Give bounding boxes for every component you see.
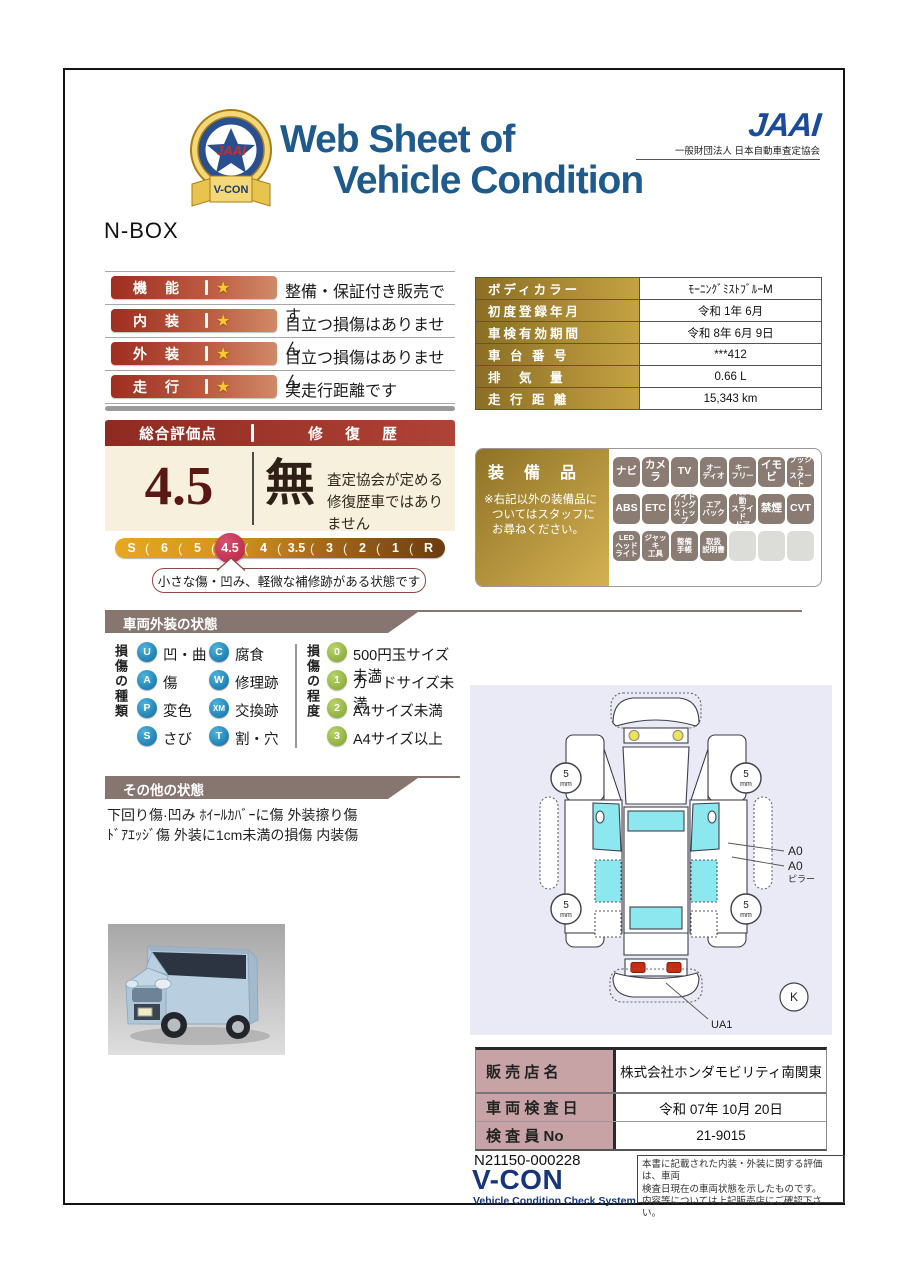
grade-callout: 小さな傷・凹み、軽微な補修跡がある状態です [152,568,426,593]
equipment-note-line2: ついてはスタッフに [484,508,609,523]
pill-divider [205,346,208,361]
dealer-label: 販 売 店 名 [476,1050,613,1092]
damage-type-u-text: 凹・曲 [163,644,207,665]
score-panel: 総合評価点 修 復 歴 4.5 無 査定協会が定める 修復歴車ではありません [105,420,455,531]
vcon-subtitle: Vehicle Condition Check System [473,1195,636,1207]
pill-divider [205,379,208,394]
equip-badge-empty [729,531,756,561]
score-panel-body: 4.5 無 査定協会が定める 修復歴車ではありません [105,446,455,531]
pill-divider [205,313,208,328]
damage-type-t-icon: T [209,726,229,746]
equipment-note-line3: お尋ねください。 [484,523,609,538]
rating-pill: 内 装 ★ [111,309,277,332]
vehicle-condition-sheet: JAAI V-CON Web Sheet of Vehicle Conditio… [0,0,904,1280]
info-value: ***412 [640,344,821,365]
ratings-table: 機 能 ★ 整備・保証付き販売です 内 装 ★ 目立つ損傷はありません 外 装 … [105,271,455,404]
damage-degree-3-text: A4サイズ以上 [353,728,443,749]
damage-type-c-text: 腐食 [235,644,264,665]
grade-r: R [412,538,445,558]
vcon-badge-logo: JAAI V-CON [182,108,280,212]
damage-type-c-icon: C [209,642,229,662]
info-value: 令和 1年 6月 [640,300,821,321]
rating-row-interior: 内 装 ★ 目立つ損傷はありません [105,305,455,338]
damage-type-a-text: 傷 [163,672,178,693]
damage-degree-2-icon: 2 [327,698,347,718]
tread-front-right-unit: mm [740,781,752,788]
damage-type-xm-icon: XM [209,698,229,718]
info-value: 0.66 L [640,366,821,387]
dealer-value: 21-9015 [616,1122,826,1149]
score-panel-header: 総合評価点 修 復 歴 [105,420,455,446]
equip-badge-camera: カメラ [642,457,669,487]
damage-type-s-text: さび [163,728,192,749]
info-label: 初度登録年月 [476,300,640,321]
repair-history-heading: 修 復 歴 [254,423,455,444]
damage-type-a-icon: A [137,670,157,690]
damage-label-ua1: UA1 [711,1019,732,1031]
rating-row-mileage: 走 行 ★ 実走行距離です [105,371,455,404]
equip-badge-power-slide-door: 片側電動 スライド ドア [729,494,756,524]
body-divider [252,452,254,525]
star-icon: ★ [216,311,230,331]
vehicle-photo [108,924,285,1055]
damage-type-w-icon: W [209,670,229,690]
damage-type-p-text: 変色 [163,700,192,721]
dealer-table: 販 売 店 名 株式会社ホンダモビリティ南関東 車 両 検 査 日 令和 07年… [475,1047,827,1151]
grade-3-5: 3.5 [280,538,313,558]
badge-jaai-text: JAAI [216,143,246,158]
section-tab-other: その他の状態 [105,778,418,799]
info-label: ボディカラー [476,278,640,299]
badge-vcon-text: V-CON [214,184,249,196]
damage-type-s-icon: S [137,726,157,746]
equip-badge-cvt: CVT [787,494,814,524]
rating-row-exterior: 外 装 ★ 目立つ損傷はありません [105,338,455,371]
damage-degree-0-icon: 0 [327,642,347,662]
dealer-value: 株式会社ホンダモビリティ南関東 [616,1050,826,1092]
equip-badge-no-smoking: 禁煙 [758,494,785,524]
grade-2: 2 [346,538,379,558]
star-icon: ★ [216,344,230,364]
equip-badge-jack-tools: ジャッキ 工具 [642,531,669,561]
rating-label: 外 装 [111,344,203,364]
damage-type-label: 損傷の種類 [111,644,130,719]
tread-rear-left-value: 5 [563,900,569,911]
grade-scale-band: S 6 5 4.5 4 3.5 3 2 1 R [115,538,445,558]
damage-degree-3-icon: 3 [327,726,347,746]
overall-score-heading: 総合評価点 [105,423,251,444]
dealer-value: 令和 07年 10月 20日 [616,1094,826,1121]
equipment-title: 装 備 品 [488,459,609,483]
tread-rear-right-unit: mm [740,912,752,919]
grade-callout-text: 小さな傷・凹み、軽微な補修跡がある状態です [158,571,421,590]
damage-type-t-text: 割・穴 [235,728,279,749]
equip-badge-etc: ETC [642,494,669,524]
damage-type-p-icon: P [137,698,157,718]
disclaimer: 本書に記載された内装・外装に関する評価は、車両 検査日現在の車両状態を示したもの… [637,1155,845,1203]
equip-badge-manual: 取扱 説明書 [700,531,727,561]
dealer-label: 検 査 員 No [476,1122,613,1149]
section-exterior-condition: 車両外装の状態 [105,610,802,633]
pill-divider [205,280,208,295]
rating-pill: 機 能 ★ [111,276,277,299]
equip-badge-tv: TV [671,457,698,487]
damage-diagram: 5 mm 5 mm 5 mm 5 mm A0 A0 ピラー UA1 K [470,685,832,1035]
equip-badge-immobilizer: イモビ [758,457,785,487]
equip-badge-empty [787,531,814,561]
grade-6: 6 [148,538,181,558]
info-label: 車検有効期間 [476,322,640,343]
equipment-panel: 装 備 品 ※右記以外の装備品に ついてはスタッフに お尋ねください。 .ero… [475,448,822,587]
info-row-displacement: 排 気 量 0.66 L [476,366,821,388]
sheet-title-line1: Web Sheet of [280,118,514,162]
equip-badge-empty [758,531,785,561]
info-row-mileage: 走 行 距 離 15,343 km [476,388,821,410]
jaai-wordmark: JAAI [634,110,821,140]
section-tab-exterior: 車両外装の状態 [105,612,418,633]
info-row-chassis-number: 車 台 番 号 ***412 [476,344,821,366]
grade-3: 3 [313,538,346,558]
info-label: 走 行 距 離 [476,388,640,409]
grade-scale: S 6 5 4.5 4 3.5 3 2 1 R [105,531,455,565]
info-label: 車 台 番 号 [476,344,640,365]
rating-pill: 外 装 ★ [111,342,277,365]
jaai-logo: JAAI 一般財団法人 日本自動車査定協会 [636,110,820,160]
damage-type-w-text: 修理跡 [235,672,279,693]
star-icon: ★ [216,278,230,298]
grade-1: 1 [379,538,412,558]
equip-badge-airbag: エア バック [700,494,727,524]
equip-badge-abs: ABS [613,494,640,524]
dealer-row-inspection-date: 車 両 検 査 日 令和 07年 10月 20日 [476,1094,826,1122]
overall-score-value: 4.5 [115,454,243,517]
damage-label-a0-1: A0 [788,844,803,858]
grade-s: S [115,538,148,558]
damage-type-xm-text: 交換跡 [235,700,279,721]
damage-degree-2-text: A4サイズ未満 [353,700,443,721]
equip-badge-idling-stop: アイド リング ストップ [671,494,698,524]
info-label: 排 気 量 [476,366,640,387]
tread-rear-right-value: 5 [743,900,749,911]
diagram-k-mark: K [790,990,798,1004]
dealer-row-inspector-no: 検 査 員 No 21-9015 [476,1122,826,1149]
damage-label-pillar: ピラー [788,874,815,884]
vehicle-info-table: ボディカラー ﾓｰﾆﾝｸﾞﾐｽﾄﾌﾞﾙｰM 初度登録年月 令和 1年 6月 車検… [475,277,822,410]
vcon-wordmark: V-CON [472,1164,563,1196]
legend-divider [295,644,297,748]
grade-4: 4 [247,538,280,558]
rating-label: 機 能 [111,278,203,298]
callout-pointer [211,557,255,571]
info-row-inspection-expiry: 車検有効期間 令和 8年 6月 9日 [476,322,821,344]
info-value: 15,343 km [640,388,821,409]
equip-badge-service-book: 整備 手帳 [671,531,698,561]
info-value: ﾓｰﾆﾝｸﾞﾐｽﾄﾌﾞﾙｰM [640,278,821,299]
dealer-row-shop: 販 売 店 名 株式会社ホンダモビリティ南関東 [476,1050,826,1094]
rating-pill: 走 行 ★ [111,375,277,398]
jaai-subtitle: 一般財団法人 日本自動車査定協会 [636,143,820,160]
equipment-note-line1: ※右記以外の装備品に [484,493,609,508]
sheet-title-line2: Vehicle Condition [333,159,643,203]
grade-5: 5 [181,538,214,558]
equip-badge-navi: ナビ [613,457,640,487]
tread-front-left-value: 5 [563,769,569,780]
rating-row-function: 機 能 ★ 整備・保証付き販売です [105,272,455,305]
equip-badge-pushstart: プッシュ スタート [787,457,814,487]
rating-label: 走 行 [111,377,203,397]
tread-front-left-unit: mm [560,781,572,788]
rating-text: 実走行距離です [285,377,397,401]
damage-legend: 損傷の種類 U 凹・曲 C 腐食 A 傷 W 修理跡 P 変色 XM 交換跡 S… [105,640,460,756]
dealer-label: 車 両 検 査 日 [476,1094,613,1121]
grade-4-5-selected: 4.5 [214,538,247,558]
vehicle-model: N-BOX [104,218,179,244]
rating-label: 内 装 [111,311,203,331]
damage-degree-label: 損傷の程度 [303,644,322,719]
damage-label-a0-2: A0 [788,859,803,873]
equipment-title-panel: 装 備 品 ※右記以外の装備品に ついてはスタッフに お尋ねください。 [476,449,609,586]
other-condition-text: 下回り傷·凹み ﾎｲｰﾙｶﾊﾞｰに傷 外装擦り傷 ﾄﾞｱｴｯｼﾞ傷 外装に1cm… [107,806,457,845]
tread-front-right-value: 5 [743,769,749,780]
damage-type-u-icon: U [137,642,157,662]
repair-history-status: 無 [265,458,315,508]
section-other-condition: その他の状態 [105,776,460,799]
section-divider [105,406,455,411]
repair-history-description: 査定協会が定める 修復歴車ではありません [327,471,455,536]
equip-badge-keyfree: キー フリー [729,457,756,487]
info-row-first-registration: 初度登録年月 令和 1年 6月 [476,300,821,322]
equip-badge-audio: オー ディオ [700,457,727,487]
star-icon: ★ [216,377,230,397]
info-value: 令和 8年 6月 9日 [640,322,821,343]
equipment-badges: .erow{display:flex;gap:2px;margin-bottom… [613,457,818,568]
equip-badge-led-headlight: LED ヘッド ライト [613,531,640,561]
tread-rear-left-unit: mm [560,912,572,919]
damage-degree-1-icon: 1 [327,670,347,690]
info-row-body-color: ボディカラー ﾓｰﾆﾝｸﾞﾐｽﾄﾌﾞﾙｰM [476,278,821,300]
